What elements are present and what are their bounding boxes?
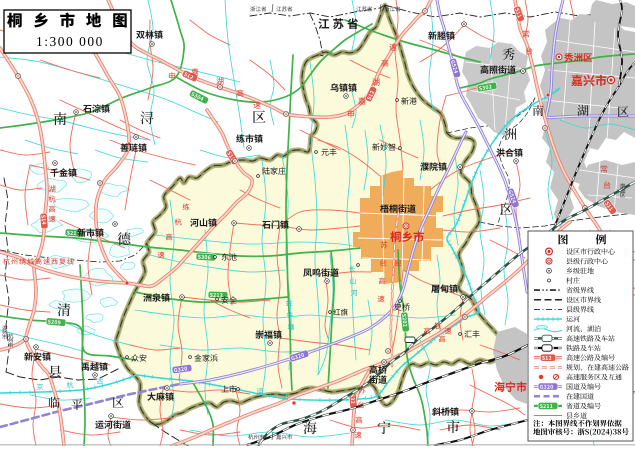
svg-text:1:300 000: 1:300 000 bbox=[36, 34, 104, 49]
